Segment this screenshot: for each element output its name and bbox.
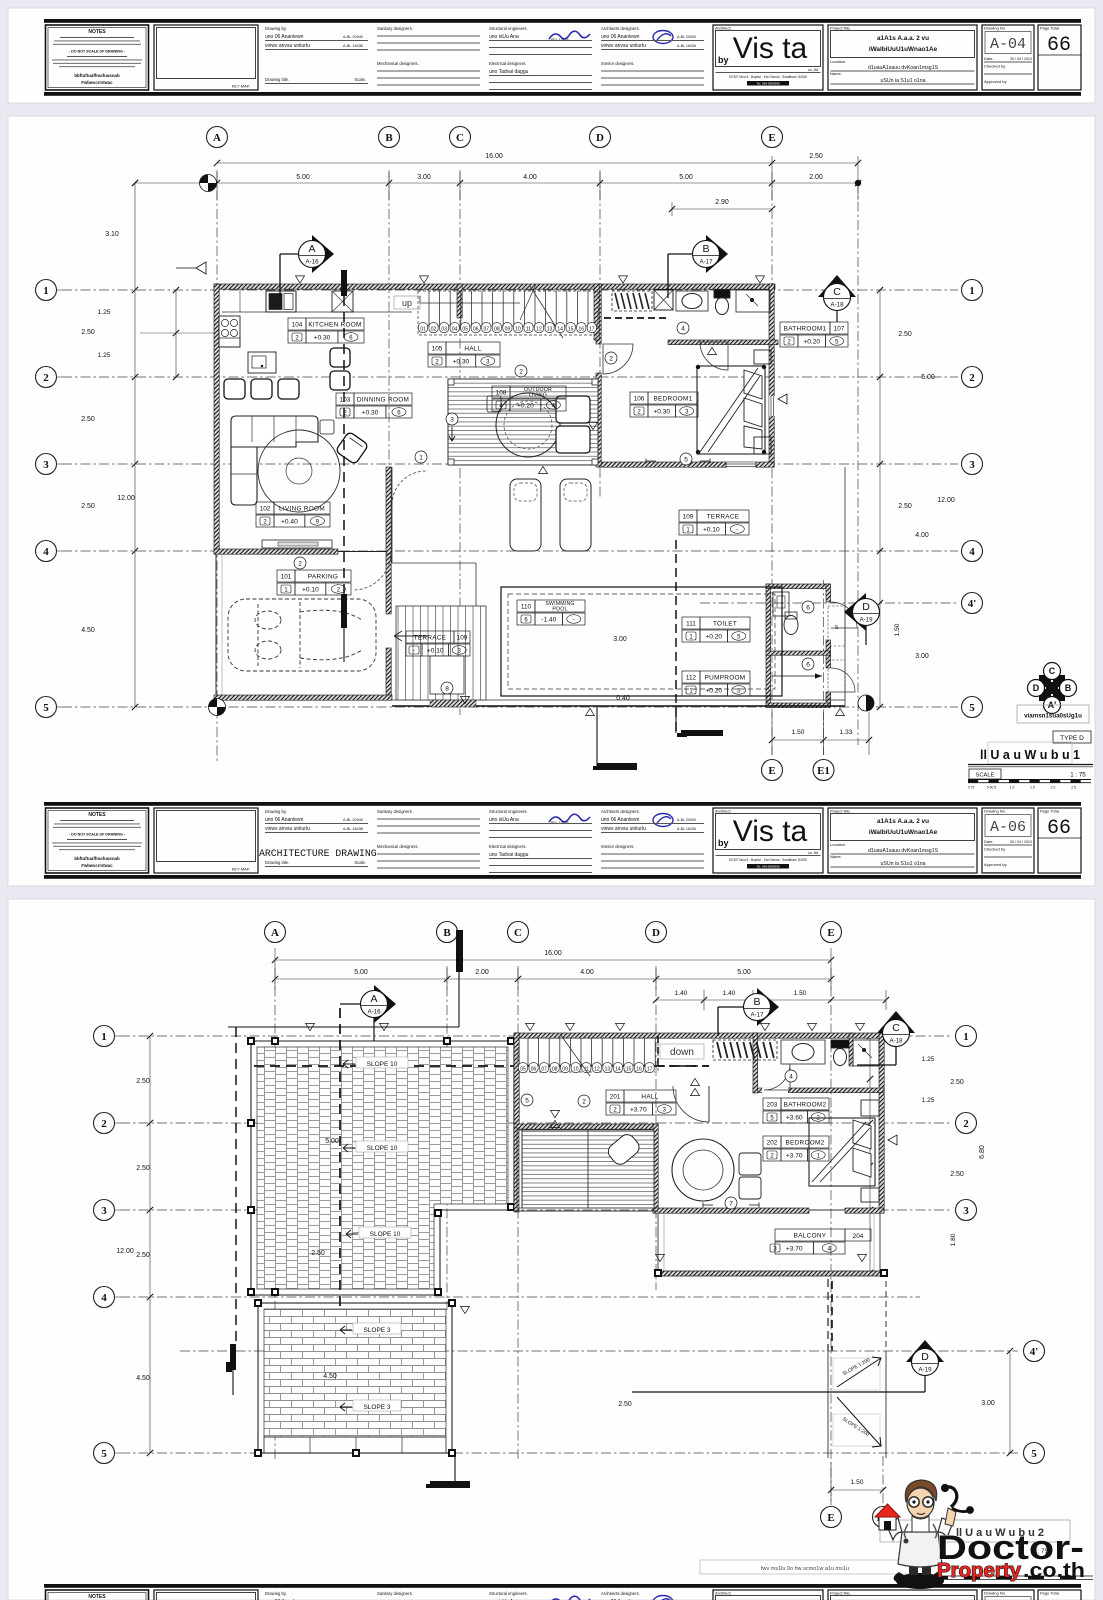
svg-text:E: E bbox=[827, 1512, 834, 1524]
svg-text:uno 06 Ananlewn: uno 06 Ananlewn bbox=[601, 34, 640, 40]
svg-text:14: 14 bbox=[615, 1066, 621, 1072]
svg-text:uno Tadvai daggu: uno Tadvai daggu bbox=[489, 852, 529, 858]
svg-text:16.00: 16.00 bbox=[544, 950, 562, 957]
svg-text:5: 5 bbox=[969, 702, 975, 714]
svg-text:1.50: 1.50 bbox=[894, 623, 901, 636]
svg-text:SLOPE 3: SLOPE 3 bbox=[363, 1327, 390, 1334]
svg-text:+0.10: +0.10 bbox=[703, 527, 720, 534]
svg-text:Approved by.: Approved by. bbox=[984, 79, 1007, 84]
svg-text:2: 2 bbox=[582, 1098, 586, 1105]
svg-text:D: D bbox=[921, 1351, 929, 1363]
svg-text:A-BL 20940: A-BL 20940 bbox=[677, 818, 696, 822]
svg-text:5: 5 bbox=[43, 702, 49, 714]
svg-text:Structural engineers.: Structural engineers. bbox=[489, 809, 528, 814]
svg-text:2: 2 bbox=[519, 368, 523, 375]
svg-text:4': 4' bbox=[968, 598, 977, 610]
svg-text:uno isUu Ana: uno isUu Ana bbox=[489, 34, 519, 40]
svg-text:uno 06 Ananlewn: uno 06 Ananlewn bbox=[601, 817, 640, 823]
svg-text:3: 3 bbox=[969, 459, 975, 471]
svg-text:0.40: 0.40 bbox=[616, 695, 630, 702]
svg-text:A: A bbox=[370, 993, 377, 1005]
svg-text:4.00: 4.00 bbox=[915, 532, 929, 539]
svg-text:10: 10 bbox=[573, 1066, 579, 1072]
svg-text:E: E bbox=[768, 132, 775, 144]
svg-text:A-BL 20940: A-BL 20940 bbox=[343, 35, 363, 39]
svg-text:-: - bbox=[573, 617, 575, 623]
svg-text:109: 109 bbox=[683, 513, 694, 520]
svg-text:105: 105 bbox=[432, 345, 443, 352]
svg-text:a1A1s A.a.a. 2 vu: a1A1s A.a.a. 2 vu bbox=[877, 818, 929, 825]
svg-text:Sanitary designers.: Sanitary designers. bbox=[377, 1591, 413, 1596]
svg-text:Drawing by.: Drawing by. bbox=[265, 1591, 287, 1596]
svg-text:Sanitary designers.: Sanitary designers. bbox=[377, 809, 413, 814]
svg-text:+0.30: +0.30 bbox=[653, 409, 670, 416]
svg-text:5: 5 bbox=[1031, 1448, 1037, 1460]
svg-text:iWalbiUuU1uWnao1Ae: iWalbiUuU1uWnao1Ae bbox=[869, 829, 938, 836]
svg-text:Tel. 099-9999999: Tel. 099-9999999 bbox=[756, 82, 780, 86]
svg-text:fwv ms1lu 0o hw scmo1w a1u: fwv ms1lu 0o hw scmo1w a1u ms1u bbox=[761, 1566, 849, 1572]
svg-text:2: 2 bbox=[969, 372, 975, 384]
svg-text:uSUn ia S1u1 o1na: uSUn ia S1u1 o1na bbox=[881, 78, 926, 84]
svg-text:5.00: 5.00 bbox=[921, 374, 935, 381]
svg-text:2: 2 bbox=[101, 1118, 107, 1130]
svg-text:08: 08 bbox=[494, 326, 500, 332]
svg-text:Structural engineers.: Structural engineers. bbox=[489, 1591, 528, 1596]
svg-text:Electrical designers.: Electrical designers. bbox=[489, 844, 526, 849]
svg-text:HALL: HALL bbox=[641, 1093, 658, 1100]
svg-text:66: 66 bbox=[1047, 817, 1071, 840]
svg-text:Drawing title.: Drawing title. bbox=[265, 860, 289, 865]
svg-text:C: C bbox=[833, 286, 841, 298]
svg-text:A: A bbox=[213, 132, 221, 144]
svg-text:SCALE: SCALE bbox=[975, 773, 994, 779]
svg-text:1.80: 1.80 bbox=[950, 1233, 957, 1246]
svg-text:Tel. 099-9999999: Tel. 099-9999999 bbox=[756, 865, 780, 869]
svg-text:KEY MAP.: KEY MAP. bbox=[232, 84, 250, 89]
svg-text:+0.10: +0.10 bbox=[427, 648, 444, 655]
svg-text:by: by bbox=[718, 55, 729, 65]
svg-text:bbftuftuaffmafuusnab: bbftuftuaffmafuusnab bbox=[74, 856, 120, 861]
svg-text:uSUn ia S1u1 o1na: uSUn ia S1u1 o1na bbox=[881, 861, 926, 867]
svg-text:C: C bbox=[892, 1022, 900, 1034]
svg-text:3: 3 bbox=[963, 1205, 969, 1217]
svg-text:15: 15 bbox=[568, 326, 574, 332]
svg-text:04: 04 bbox=[452, 326, 458, 332]
svg-text:iWalbiUuU1uWnao1Ae: iWalbiUuU1uWnao1Ae bbox=[869, 46, 938, 53]
svg-text:NOTES: NOTES bbox=[88, 812, 106, 818]
svg-text:5.00: 5.00 bbox=[737, 969, 751, 976]
svg-text:Vis ta: Vis ta bbox=[733, 815, 808, 848]
svg-text:BALCONY: BALCONY bbox=[794, 1232, 827, 1239]
svg-text:57/307 Moo.5 , Bophut , Koh Sa: 57/307 Moo.5 , Bophut , Koh Samui , Sura… bbox=[729, 858, 808, 862]
svg-text:4.50: 4.50 bbox=[81, 627, 95, 634]
svg-text:Drawing No.: Drawing No. bbox=[984, 809, 1006, 814]
svg-text:.co.th: .co.th bbox=[1023, 1560, 1085, 1582]
svg-text:D: D bbox=[652, 927, 660, 939]
svg-text:Date.: Date. bbox=[984, 56, 994, 61]
svg-text:2: 2 bbox=[609, 355, 613, 362]
svg-text:12.00: 12.00 bbox=[937, 497, 955, 504]
svg-text:A-16: A-16 bbox=[367, 1009, 381, 1016]
svg-text:NOTES: NOTES bbox=[88, 29, 106, 35]
svg-text:down: down bbox=[670, 1047, 694, 1058]
svg-text:5.00: 5.00 bbox=[296, 174, 310, 181]
svg-text:2.90: 2.90 bbox=[715, 199, 729, 206]
svg-text:BEL 14438: BEL 14438 bbox=[551, 821, 569, 825]
svg-text:16: 16 bbox=[636, 1066, 642, 1072]
svg-text:+3.70: +3.70 bbox=[786, 1246, 803, 1253]
svg-text:15: 15 bbox=[626, 1066, 632, 1072]
svg-text:2.50: 2.50 bbox=[618, 1401, 632, 1408]
svg-text:1.25: 1.25 bbox=[922, 1056, 935, 1063]
svg-text:1.25: 1.25 bbox=[922, 1097, 935, 1104]
svg-text:Mechanical designers.: Mechanical designers. bbox=[377, 61, 419, 66]
svg-text:Project title.: Project title. bbox=[830, 809, 851, 814]
svg-text:+0.20: +0.20 bbox=[517, 403, 534, 410]
svg-text:3.00: 3.00 bbox=[915, 653, 929, 660]
svg-text:+0.20: +0.20 bbox=[803, 339, 820, 346]
svg-text:5.00: 5.00 bbox=[325, 1138, 339, 1145]
svg-text:1.40: 1.40 bbox=[723, 990, 736, 997]
svg-text:uno 06 Ananlewn: uno 06 Ananlewn bbox=[265, 34, 304, 40]
svg-text:5.00: 5.00 bbox=[354, 969, 368, 976]
svg-text:co.,ltd: co.,ltd bbox=[808, 68, 818, 72]
svg-text:Name.: Name. bbox=[830, 71, 842, 76]
svg-text:POOL: POOL bbox=[552, 607, 567, 613]
svg-text:2.50: 2.50 bbox=[898, 331, 912, 338]
svg-text:+3.60: +3.60 bbox=[786, 1115, 803, 1122]
svg-text:B: B bbox=[443, 927, 451, 939]
svg-text:+0.30: +0.30 bbox=[314, 335, 331, 342]
svg-text:C: C bbox=[1049, 666, 1056, 676]
svg-text:A-04: A-04 bbox=[990, 36, 1026, 53]
svg-text:SLOPE 10: SLOPE 10 bbox=[367, 1061, 398, 1068]
svg-text:A-06: A-06 bbox=[990, 819, 1026, 836]
svg-text:07: 07 bbox=[541, 1066, 547, 1072]
svg-text:4: 4 bbox=[681, 325, 685, 332]
svg-text:103: 103 bbox=[340, 396, 351, 403]
svg-text:Scale.: Scale. bbox=[354, 860, 366, 865]
svg-text:09: 09 bbox=[505, 326, 511, 332]
svg-text:2.50: 2.50 bbox=[81, 503, 95, 510]
svg-text:A-BL 20940: A-BL 20940 bbox=[343, 818, 363, 822]
svg-text:PARKING: PARKING bbox=[308, 573, 338, 580]
svg-text:A-BL 18436: A-BL 18436 bbox=[677, 44, 696, 48]
svg-text:PUMPROOM: PUMPROOM bbox=[705, 674, 746, 681]
svg-text:+0.40: +0.40 bbox=[281, 519, 298, 526]
svg-text:Fwbwscrrstwac: Fwbwscrrstwac bbox=[81, 863, 113, 868]
svg-text:3.00: 3.00 bbox=[417, 174, 431, 181]
svg-text:2.50: 2.50 bbox=[136, 1078, 150, 1085]
svg-text:A: A bbox=[271, 927, 279, 939]
svg-text:Page Total.: Page Total. bbox=[1040, 26, 1060, 31]
svg-text:2.50: 2.50 bbox=[136, 1252, 150, 1259]
svg-text:109: 109 bbox=[457, 634, 468, 641]
svg-text:6.80: 6.80 bbox=[979, 1145, 986, 1159]
svg-text:a1A1s A.a.a. 2 vu: a1A1s A.a.a. 2 vu bbox=[877, 35, 929, 42]
svg-text:1: 1 bbox=[963, 1031, 969, 1043]
svg-text:13: 13 bbox=[605, 1066, 611, 1072]
svg-text:A-BL 18436: A-BL 18436 bbox=[677, 827, 696, 831]
svg-text:Sanitary designers.: Sanitary designers. bbox=[377, 26, 413, 31]
svg-text:08: 08 bbox=[552, 1066, 558, 1072]
svg-text:16.00: 16.00 bbox=[485, 153, 503, 160]
svg-text:05: 05 bbox=[462, 326, 468, 332]
svg-text:B: B bbox=[702, 243, 709, 255]
svg-text:+0.10: +0.10 bbox=[302, 587, 319, 594]
svg-text:A-17: A-17 bbox=[699, 259, 713, 266]
svg-text:TERRACE: TERRACE bbox=[707, 513, 740, 520]
svg-text:BEDROOM1: BEDROOM1 bbox=[654, 395, 693, 402]
svg-text:1 : 75: 1 : 75 bbox=[1070, 772, 1086, 779]
svg-text:Architects designers.: Architects designers. bbox=[601, 1591, 640, 1596]
svg-text:14: 14 bbox=[557, 326, 563, 332]
svg-text:BEL 14438: BEL 14438 bbox=[551, 38, 569, 42]
svg-text:12.00: 12.00 bbox=[116, 1248, 134, 1255]
svg-text:10: 10 bbox=[515, 326, 521, 332]
svg-text:Drawing by.: Drawing by. bbox=[265, 26, 287, 31]
svg-text:06: 06 bbox=[531, 1066, 537, 1072]
svg-text:voiws anvsu uniiurtu: voiws anvsu uniiurtu bbox=[265, 826, 310, 832]
svg-text:Property: Property bbox=[937, 1560, 1022, 1582]
svg-text:A-19: A-19 bbox=[918, 1367, 932, 1374]
svg-text:3: 3 bbox=[43, 459, 49, 471]
svg-text:4: 4 bbox=[969, 546, 975, 558]
svg-text:up: up bbox=[402, 298, 412, 308]
svg-text:D: D bbox=[1033, 683, 1040, 693]
svg-text:Electrical designers.: Electrical designers. bbox=[489, 61, 526, 66]
svg-text:Location.: Location. bbox=[830, 842, 846, 847]
svg-text:E1: E1 bbox=[817, 765, 830, 777]
svg-text:1.0: 1.0 bbox=[1010, 786, 1015, 790]
svg-text:- DO NOT SCALE OF DRAWING -: - DO NOT SCALE OF DRAWING - bbox=[69, 833, 126, 837]
svg-text:201: 201 bbox=[610, 1093, 621, 1100]
svg-text:30 / 04 / 2024: 30 / 04 / 2024 bbox=[1010, 840, 1032, 844]
svg-text:Page Total.: Page Total. bbox=[1040, 1591, 1060, 1596]
svg-text:05: 05 bbox=[520, 1066, 526, 1072]
svg-text:Architect.: Architect. bbox=[715, 1591, 732, 1596]
svg-text:viamsn1sua0sUg1u: viamsn1sua0sUg1u bbox=[1024, 713, 1082, 720]
svg-text:Approved by.: Approved by. bbox=[984, 862, 1007, 867]
svg-text:202: 202 bbox=[767, 1139, 778, 1146]
svg-text:1: 1 bbox=[43, 285, 49, 297]
svg-text:2.50: 2.50 bbox=[950, 1079, 964, 1086]
svg-text:12: 12 bbox=[536, 326, 542, 332]
svg-text:7: 7 bbox=[729, 1200, 733, 1207]
svg-text:by: by bbox=[718, 838, 729, 848]
svg-text:204: 204 bbox=[853, 1233, 864, 1240]
svg-text:110: 110 bbox=[521, 603, 532, 610]
svg-text:TOILET: TOILET bbox=[713, 620, 737, 627]
svg-text:LIVING: LIVING bbox=[529, 393, 547, 399]
svg-text:Structural engineers.: Structural engineers. bbox=[489, 26, 528, 31]
svg-text:Scale.: Scale. bbox=[354, 77, 366, 82]
svg-text:4: 4 bbox=[789, 1073, 793, 1080]
svg-text:5.00: 5.00 bbox=[679, 174, 693, 181]
svg-text:ARCHITECTURE DRAWING: ARCHITECTURE DRAWING bbox=[259, 848, 377, 859]
svg-text:Project title.: Project title. bbox=[830, 26, 851, 31]
svg-text:0.50.5: 0.50.5 bbox=[987, 786, 997, 790]
svg-text:01: 01 bbox=[420, 326, 426, 332]
svg-text:Location.: Location. bbox=[830, 59, 846, 64]
svg-text:2.00: 2.00 bbox=[475, 969, 489, 976]
svg-text:+0.30: +0.30 bbox=[362, 410, 379, 417]
svg-text:DINNING ROOM: DINNING ROOM bbox=[357, 396, 409, 403]
svg-text:Mechanical designers.: Mechanical designers. bbox=[377, 844, 419, 849]
svg-text:104: 104 bbox=[292, 321, 303, 328]
svg-text:Architects designers.: Architects designers. bbox=[601, 26, 640, 31]
svg-text:1: 1 bbox=[419, 454, 423, 461]
svg-text:A: A bbox=[308, 243, 315, 255]
svg-text:2.50: 2.50 bbox=[809, 153, 823, 160]
svg-text:3: 3 bbox=[450, 416, 454, 423]
svg-text:3.10: 3.10 bbox=[105, 231, 119, 238]
svg-text:1.25: 1.25 bbox=[98, 352, 111, 359]
svg-text:03: 03 bbox=[441, 326, 447, 332]
svg-text:TYPE D: TYPE D bbox=[1060, 735, 1084, 742]
svg-text:1.40: 1.40 bbox=[675, 990, 688, 997]
svg-text:1: 1 bbox=[969, 285, 975, 297]
svg-text:4.50: 4.50 bbox=[136, 1375, 150, 1382]
svg-text:voiws anvsu uniiurtu: voiws anvsu uniiurtu bbox=[265, 43, 310, 49]
svg-text:12.00: 12.00 bbox=[117, 495, 135, 502]
svg-text:4': 4' bbox=[1030, 1346, 1039, 1358]
svg-text:d1uauA1sauu dvKoan1msg1S: d1uauA1sauu dvKoan1msg1S bbox=[868, 848, 939, 854]
svg-text:1.5: 1.5 bbox=[1030, 786, 1035, 790]
svg-text:BATHROOM1: BATHROOM1 bbox=[784, 325, 827, 332]
svg-text:8: 8 bbox=[445, 685, 449, 692]
svg-text:16: 16 bbox=[578, 326, 584, 332]
svg-text:09: 09 bbox=[562, 1066, 568, 1072]
svg-text:B: B bbox=[1065, 683, 1072, 693]
svg-text:A-18: A-18 bbox=[830, 302, 844, 309]
svg-text:BEDROOM2: BEDROOM2 bbox=[786, 1139, 825, 1146]
svg-text:1.50: 1.50 bbox=[794, 990, 807, 997]
svg-text:LIVING ROOM: LIVING ROOM bbox=[279, 505, 325, 512]
svg-text:4.50: 4.50 bbox=[323, 1373, 337, 1380]
svg-text:4.00: 4.00 bbox=[580, 969, 594, 976]
svg-text:11: 11 bbox=[526, 326, 531, 332]
svg-text:2: 2 bbox=[43, 372, 49, 384]
svg-text:-1.40: -1.40 bbox=[541, 617, 556, 624]
svg-text:A-17: A-17 bbox=[750, 1012, 764, 1019]
svg-text:A-16: A-16 bbox=[305, 259, 319, 266]
svg-text:A-18: A-18 bbox=[889, 1038, 903, 1045]
svg-text:ll U a u W u b u 1: ll U a u W u b u 1 bbox=[980, 748, 1080, 762]
svg-text:-: - bbox=[736, 527, 738, 533]
svg-text:+0.20: +0.20 bbox=[705, 688, 722, 695]
svg-text:5: 5 bbox=[101, 1448, 107, 1460]
svg-text:co.,ltd: co.,ltd bbox=[808, 851, 818, 855]
svg-text:2.50: 2.50 bbox=[311, 1250, 325, 1257]
svg-text:+0.20: +0.20 bbox=[705, 634, 722, 641]
svg-text:5: 5 bbox=[684, 456, 688, 463]
svg-text:1: 1 bbox=[101, 1031, 107, 1043]
svg-text:Drawing by.: Drawing by. bbox=[265, 809, 287, 814]
svg-text:KITCHEN ROOM: KITCHEN ROOM bbox=[308, 321, 361, 328]
svg-text:BATHROOM2: BATHROOM2 bbox=[784, 1101, 827, 1108]
svg-text:4.00: 4.00 bbox=[523, 174, 537, 181]
svg-text:Interior designers.: Interior designers. bbox=[601, 61, 635, 66]
svg-text:13: 13 bbox=[547, 326, 553, 332]
svg-text:-: - bbox=[413, 648, 415, 654]
svg-text:voiws anvsu uniiurtu: voiws anvsu uniiurtu bbox=[601, 826, 646, 832]
svg-text:+3.70: +3.70 bbox=[786, 1153, 803, 1160]
svg-text:Project title.: Project title. bbox=[830, 1591, 851, 1596]
svg-text:108: 108 bbox=[496, 389, 507, 396]
svg-text:Date.: Date. bbox=[984, 839, 994, 844]
svg-text:HALL: HALL bbox=[464, 345, 481, 352]
svg-text:d1uauA1sauu dvKoan1msg1S: d1uauA1sauu dvKoan1msg1S bbox=[868, 65, 939, 71]
svg-text:Interior designers.: Interior designers. bbox=[601, 844, 635, 849]
svg-text:30 / 04 / 2024: 30 / 04 / 2024 bbox=[1010, 57, 1032, 61]
svg-text:C: C bbox=[456, 132, 464, 144]
svg-text:2.50: 2.50 bbox=[136, 1165, 150, 1172]
svg-text:2.50: 2.50 bbox=[898, 503, 912, 510]
svg-text:SLOPE 10: SLOPE 10 bbox=[370, 1231, 401, 1238]
svg-text:07: 07 bbox=[484, 326, 490, 332]
svg-text:C: C bbox=[514, 927, 522, 939]
svg-text:2.50: 2.50 bbox=[950, 1171, 964, 1178]
svg-text:Vis ta: Vis ta bbox=[733, 32, 808, 65]
svg-text:B: B bbox=[385, 132, 393, 144]
svg-text:A-19: A-19 bbox=[859, 617, 873, 624]
svg-text:A-BL 18436: A-BL 18436 bbox=[343, 827, 363, 831]
svg-text:+3.70: +3.70 bbox=[630, 1107, 647, 1114]
svg-text:6: 6 bbox=[806, 604, 810, 611]
svg-text:203: 203 bbox=[767, 1101, 778, 1108]
svg-text:5: 5 bbox=[525, 1097, 529, 1104]
svg-text:3.00: 3.00 bbox=[981, 1400, 995, 1407]
svg-text:NOTES: NOTES bbox=[88, 1594, 106, 1600]
svg-text:TERRACE: TERRACE bbox=[414, 634, 447, 641]
svg-text:A-BL 18436: A-BL 18436 bbox=[343, 44, 363, 48]
svg-text:4: 4 bbox=[43, 546, 49, 558]
svg-text:SLOPE 10: SLOPE 10 bbox=[367, 1145, 398, 1152]
svg-text:1.25: 1.25 bbox=[98, 309, 111, 316]
svg-text:4: 4 bbox=[101, 1292, 107, 1304]
svg-text:106: 106 bbox=[634, 395, 645, 402]
svg-text:Architect.: Architect. bbox=[715, 809, 732, 814]
svg-text:Drawing No.: Drawing No. bbox=[984, 26, 1006, 31]
svg-text:1.50: 1.50 bbox=[851, 1479, 864, 1486]
svg-text:12: 12 bbox=[594, 1066, 600, 1072]
svg-text:3.00: 3.00 bbox=[613, 636, 627, 643]
svg-text:112: 112 bbox=[686, 674, 697, 681]
svg-text:107: 107 bbox=[834, 325, 845, 332]
svg-text:E: E bbox=[768, 765, 775, 777]
svg-text:17: 17 bbox=[589, 326, 595, 332]
svg-text:Drawing No.: Drawing No. bbox=[984, 1591, 1006, 1596]
svg-text:66: 66 bbox=[1047, 34, 1071, 57]
svg-text:102: 102 bbox=[260, 505, 271, 512]
svg-text:uno 06 Ananlewn: uno 06 Ananlewn bbox=[265, 817, 304, 823]
svg-text:02: 02 bbox=[431, 326, 437, 332]
svg-text:2.5: 2.5 bbox=[1071, 786, 1076, 790]
svg-text:voiws anvsu uniiurtu: voiws anvsu uniiurtu bbox=[601, 43, 646, 49]
svg-text:Architects designers.: Architects designers. bbox=[601, 809, 640, 814]
svg-text:Architect.: Architect. bbox=[715, 26, 732, 31]
svg-text:KEY MAP.: KEY MAP. bbox=[232, 867, 250, 872]
svg-text:Drawing title.: Drawing title. bbox=[265, 77, 289, 82]
svg-text:bbftuftuaffmafuusnab: bbftuftuaffmafuusnab bbox=[74, 73, 120, 78]
svg-text:SLOPE 3: SLOPE 3 bbox=[363, 1404, 390, 1411]
svg-text:E: E bbox=[827, 927, 834, 939]
svg-text:101: 101 bbox=[281, 573, 292, 580]
svg-text:06: 06 bbox=[473, 326, 479, 332]
svg-text:uno isUu Ana: uno isUu Ana bbox=[489, 817, 519, 823]
svg-text:2: 2 bbox=[298, 560, 302, 567]
